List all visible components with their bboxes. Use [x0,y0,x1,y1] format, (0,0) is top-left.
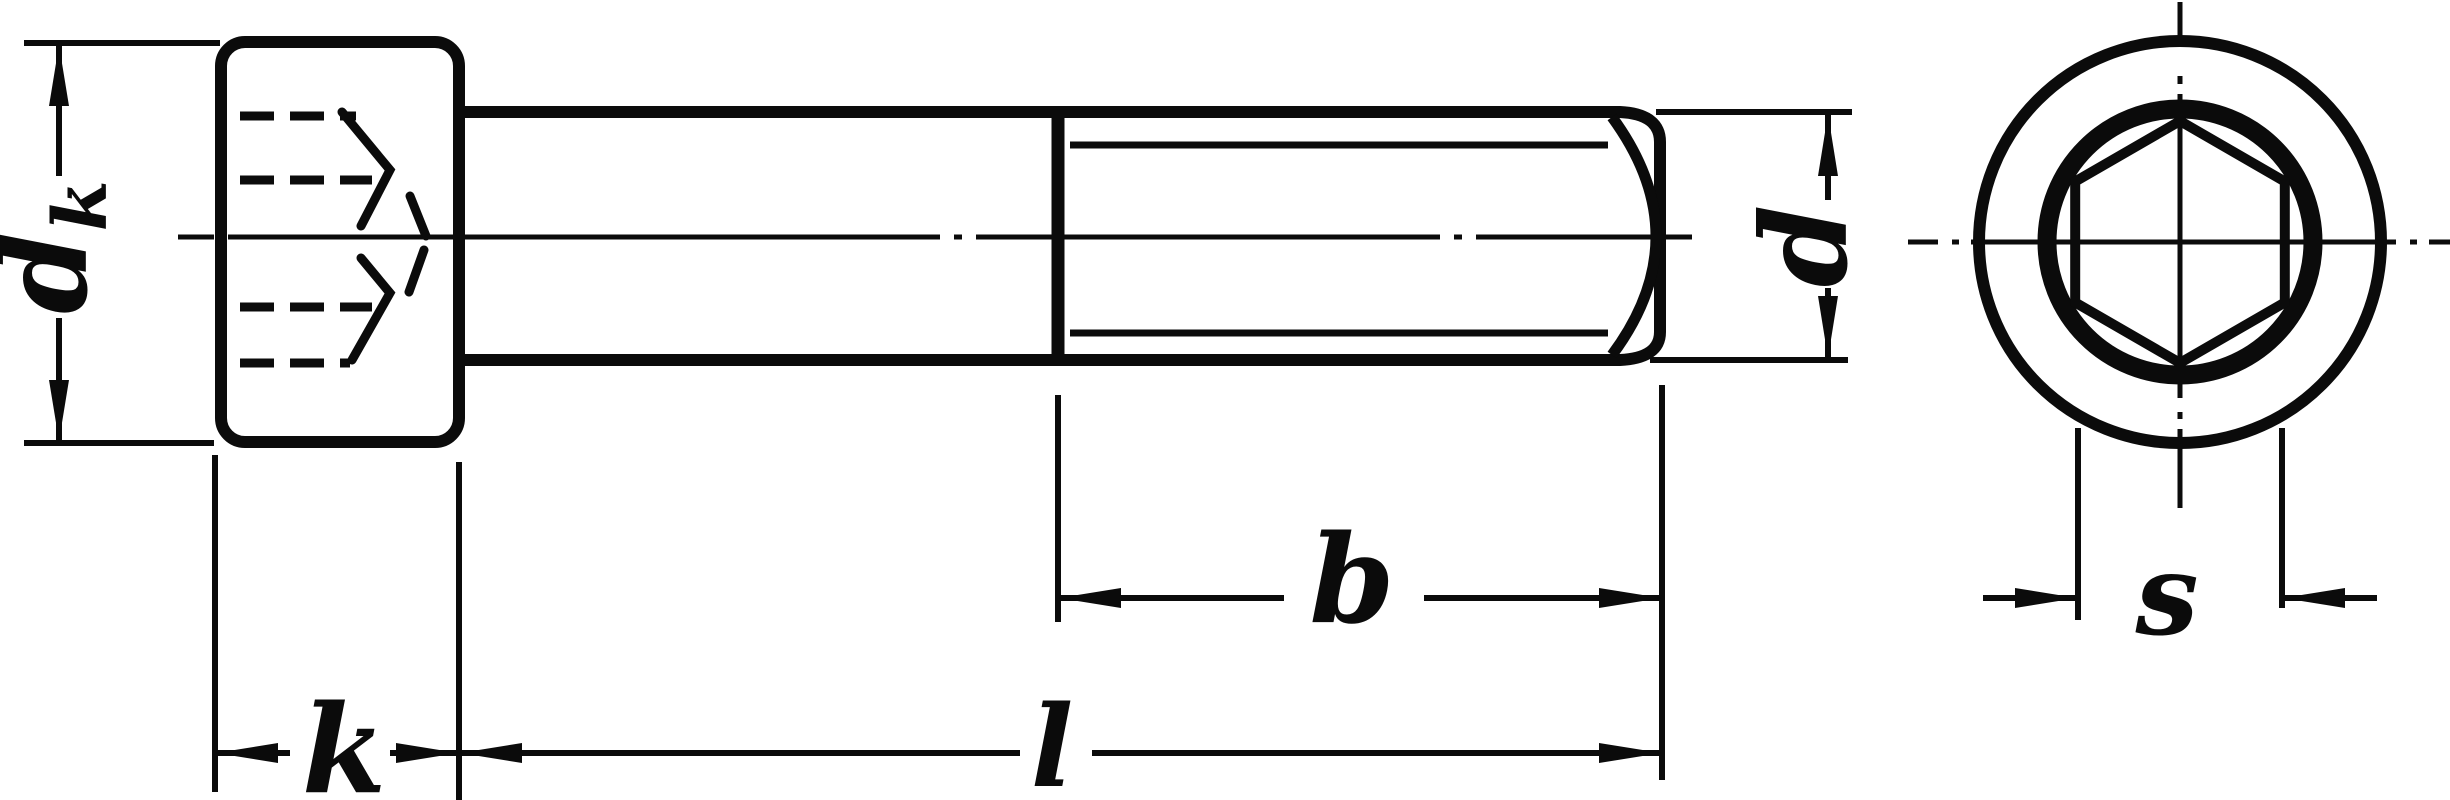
socket-chamfer-dash-lower [409,250,424,292]
side-view [178,42,1692,442]
l-label: l [1031,682,1074,800]
dk-label: dk [0,180,124,314]
screw-head-outline [221,42,459,442]
s-arrow-right-icon [2015,588,2077,608]
s-label: s [2134,530,2198,661]
dimension-head-height-k: k [215,455,459,800]
b-arrow-left-icon [1059,588,1121,608]
socket-cone-upper-chevron [342,112,390,226]
d-arrow-down-icon [1818,296,1838,358]
dk-arrow-up-icon [49,45,69,106]
socket-chamfer-dash-upper [410,196,426,236]
dk-label-subscript: k [38,180,124,231]
k-arrow-right-icon [396,743,458,763]
dk-label-main: d [0,231,114,314]
d-label: d [1735,205,1874,288]
svg-text:dk: dk [0,180,124,314]
l-arrow-left-icon [460,743,522,763]
dimension-head-diameter-dk: dk [0,43,220,443]
d-arrow-up-icon [1818,114,1838,176]
b-arrow-right-icon [1599,588,1661,608]
l-arrow-right-icon [1599,743,1661,763]
screw-technical-drawing: dk k l b d [0,0,2450,800]
dimension-thread-length-b: b [1058,395,1662,651]
d-label-group: d [1735,205,1874,288]
s-arrow-left-icon [2283,588,2345,608]
drawing-canvas: dk k l b d [0,0,2450,800]
k-label: k [302,677,387,800]
k-arrow-left-icon [216,743,278,763]
b-label: b [1309,507,1394,651]
end-view [1908,2,2450,508]
dk-arrow-down-icon [49,380,69,441]
